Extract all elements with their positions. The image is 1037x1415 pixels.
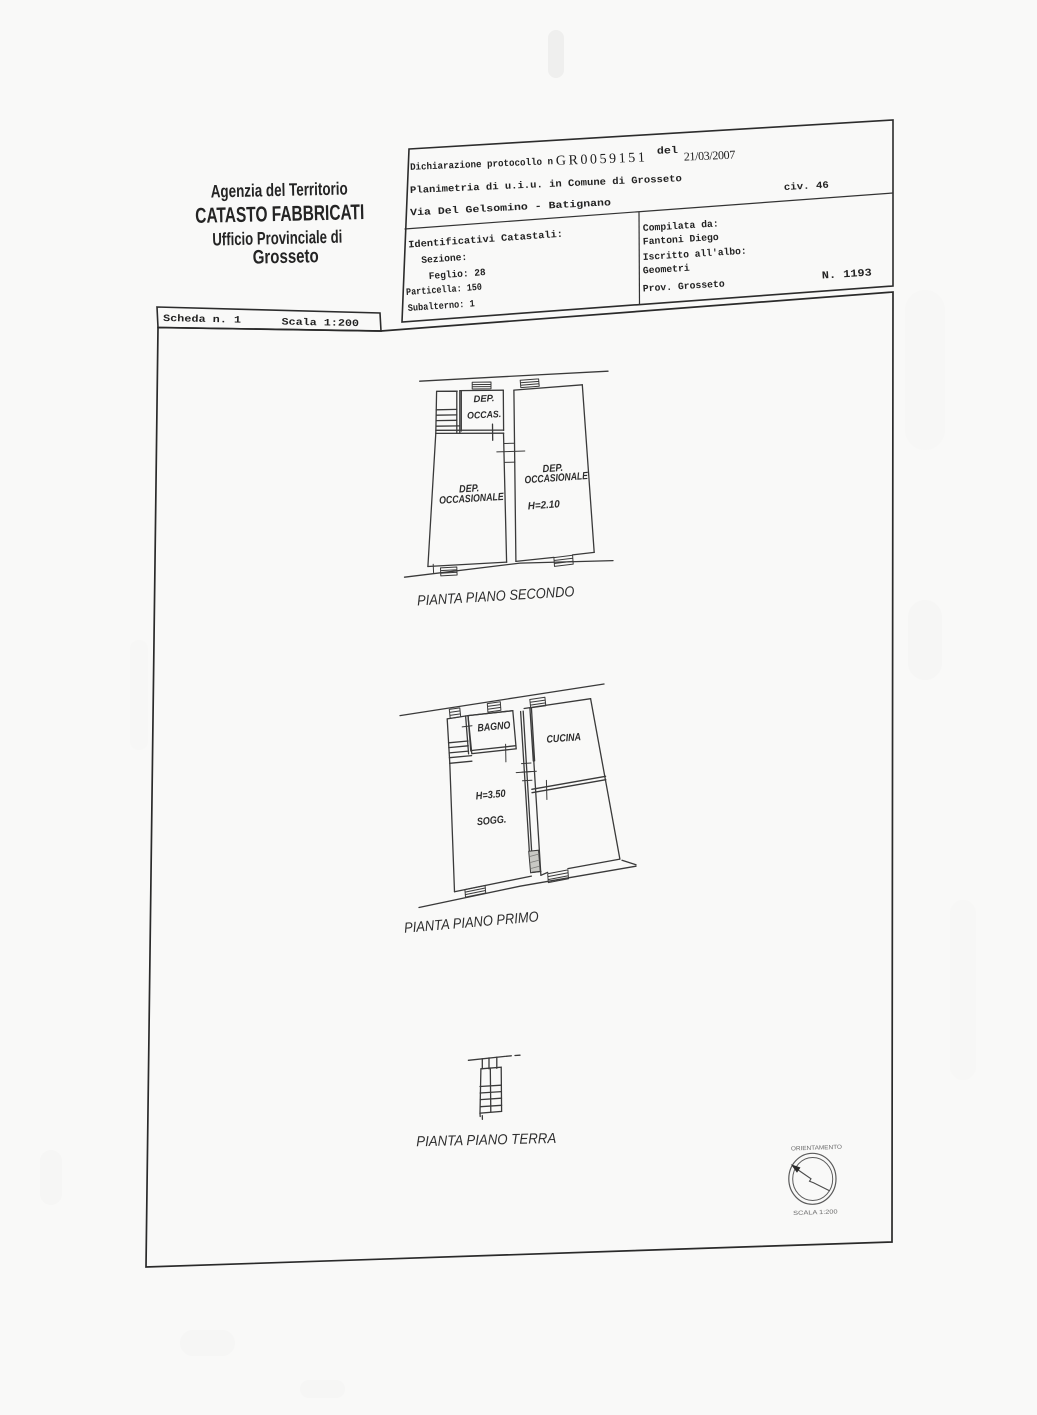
svg-text:21/03/2007: 21/03/2007: [684, 148, 736, 164]
svg-text:OCCAS.: OCCAS.: [467, 409, 502, 422]
svg-text:H=2.10: H=2.10: [527, 498, 560, 512]
svg-text:Grosseto: Grosseto: [252, 245, 319, 268]
svg-text:DEP.: DEP.: [473, 393, 495, 405]
svg-text:del: del: [657, 145, 678, 158]
svg-text:Agenzia del Territorio: Agenzia del Territorio: [210, 178, 347, 201]
svg-text:civ. 46: civ. 46: [784, 180, 830, 193]
svg-text:Scala 1:200: Scala 1:200: [281, 317, 359, 330]
svg-text:PIANTA PIANO TERRA: PIANTA PIANO TERRA: [416, 1131, 556, 1150]
svg-text:CATASTO FABBRICATI: CATASTO FABBRICATI: [195, 200, 365, 228]
svg-text:Scheda n. 1: Scheda n. 1: [163, 313, 241, 326]
